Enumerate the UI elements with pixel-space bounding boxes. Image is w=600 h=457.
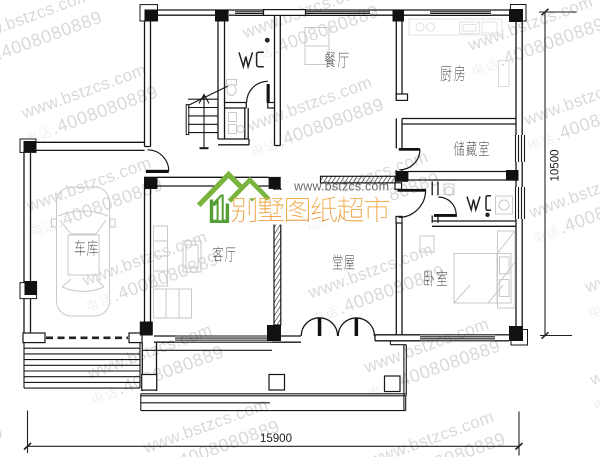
svg-text:www.bstzcs.com: www.bstzcs.com bbox=[293, 180, 389, 194]
svg-text:15900: 15900 bbox=[260, 433, 292, 445]
svg-text:10500: 10500 bbox=[550, 150, 562, 182]
